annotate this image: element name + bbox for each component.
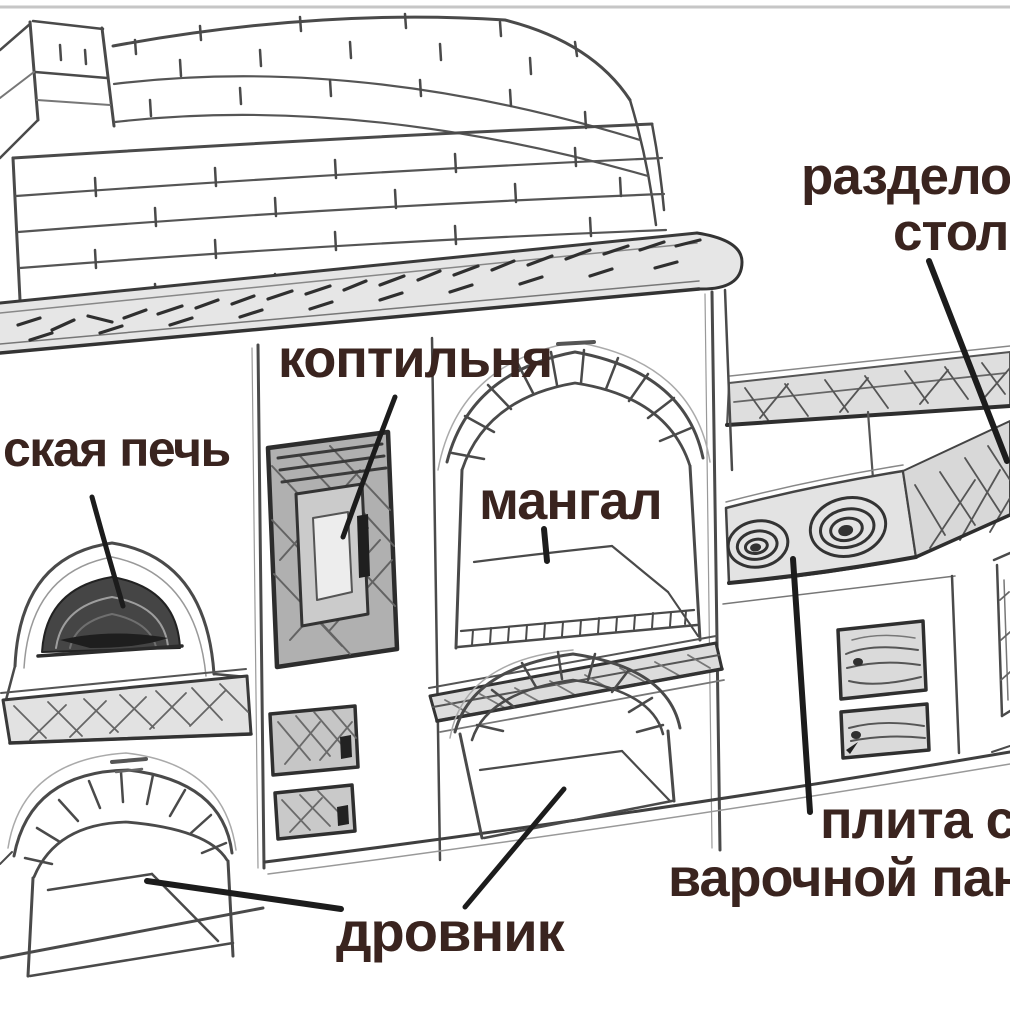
chimney-stack-sketch: [0, 21, 114, 158]
cabinet-panels-sketch: [723, 553, 1010, 758]
pointer-stove: [793, 559, 810, 812]
label-smokehouse: коптильня: [278, 332, 552, 387]
grill-shelf-sketch: [429, 636, 724, 732]
pointer-woodshed-right: [465, 789, 564, 907]
label-russian-oven: ская печь: [3, 424, 230, 475]
label-cutting-table-line2: столи: [893, 206, 1010, 260]
ash-doors-sketch: [270, 706, 358, 839]
pointer-woodshed-left: [147, 881, 341, 909]
woodshed-left-arch-sketch: [0, 753, 236, 976]
smokehouse-door-sketch: [268, 432, 397, 667]
russian-oven-sketch: [6, 543, 247, 700]
stove-cooktop-sketch: [724, 421, 1010, 583]
label-grill: мангал: [479, 474, 662, 529]
label-woodshed: дровник: [336, 903, 564, 960]
upper-brick-block-sketch: [113, 14, 656, 225]
label-cutting-table-line1: разделоч: [801, 150, 1010, 204]
oven-shelf-sketch: [1, 669, 251, 743]
label-stove-line2: варочной пан: [668, 851, 1010, 906]
pointer-grill: [544, 529, 547, 561]
door-handle: [357, 514, 370, 578]
bbq-complex-sketch-page: коптильня ская печь мангал разделоч стол…: [0, 0, 1010, 1010]
label-stove-line1: плита с: [820, 793, 1010, 848]
